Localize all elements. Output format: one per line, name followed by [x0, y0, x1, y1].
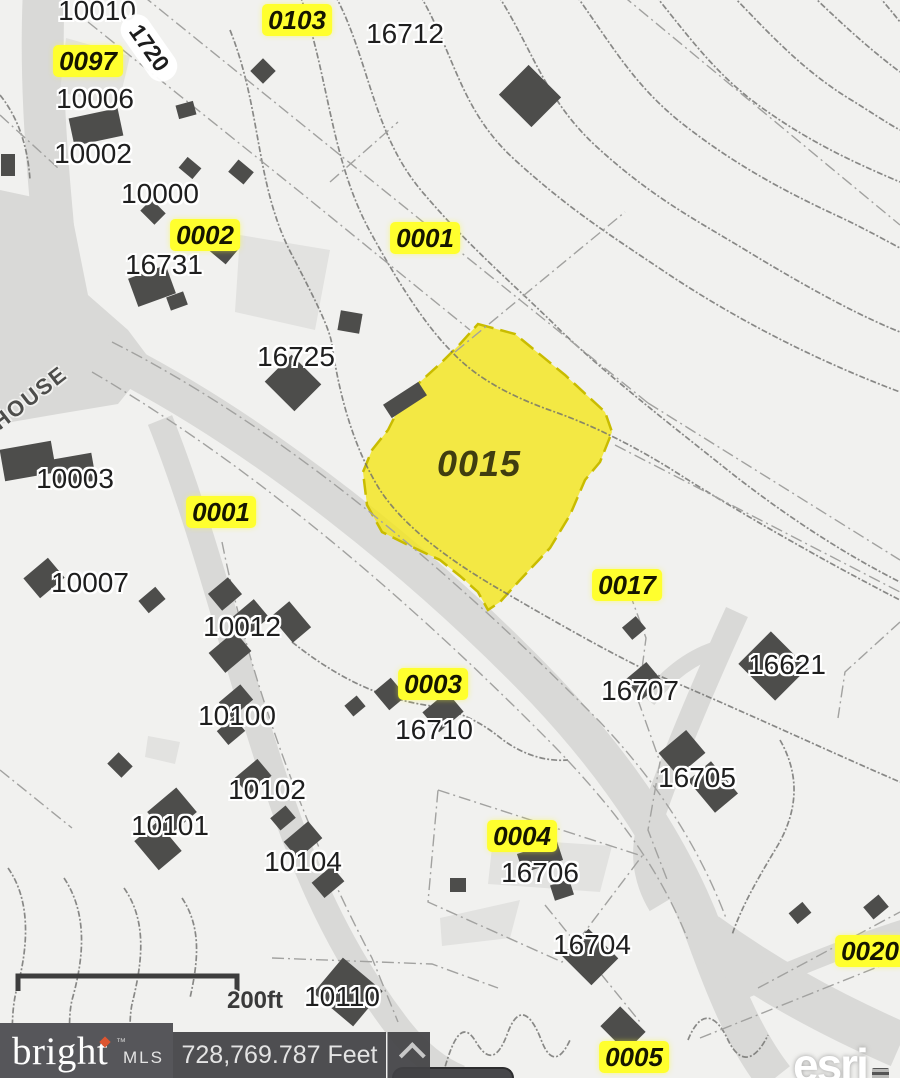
address-label-10110: 10110 — [304, 983, 380, 1011]
parcel-label-0003: 0003 — [400, 670, 466, 698]
chevron-up-icon — [398, 1042, 425, 1069]
address-label-16706: 16706 — [501, 859, 579, 887]
esri-attribution-logo: esri — [793, 1038, 889, 1078]
brand-wordmark: bright — [12, 1029, 108, 1074]
parcel-label-0004: 0004 — [489, 822, 555, 850]
parcel-label-0001: 0001 — [188, 498, 254, 526]
map-canvas[interactable]: 1001016712100061000210000167311672510003… — [0, 0, 900, 1078]
scale-bar-label: 200ft — [227, 989, 283, 1013]
road-label-1720: 1720 — [115, 8, 184, 87]
esri-globe-icon — [872, 1068, 889, 1078]
parcel-label-0017: 0017 — [594, 571, 660, 599]
address-label-16705: 16705 — [658, 764, 736, 792]
address-label-10012: 10012 — [203, 613, 281, 641]
address-label-16712: 16712 — [366, 20, 444, 48]
esri-wordmark: esri — [793, 1039, 867, 1078]
brightmls-logo: bright ™ MLS — [0, 1023, 173, 1078]
address-label-16621: 16621 — [748, 651, 826, 679]
address-label-16707: 16707 — [601, 677, 679, 705]
parcel-label-0001: 0001 — [392, 224, 458, 252]
parcel-label-0020: 0020 — [837, 937, 900, 965]
brand-mls-label: MLS — [123, 1048, 164, 1068]
address-label-10007: 10007 — [51, 569, 129, 597]
address-label-16725: 16725 — [257, 343, 335, 371]
measurement-readout: 728,769.787 Feet — [173, 1032, 386, 1078]
road-label-HOUSE: HOUSE — [0, 362, 72, 434]
parcel-label-0005: 0005 — [601, 1043, 667, 1071]
parcel-label-0097: 0097 — [55, 47, 121, 75]
measurement-value: 728,769.787 Feet — [182, 1041, 378, 1070]
address-label-10003: 10003 — [36, 465, 114, 493]
map-labels-layer: 1001016712100061000210000167311672510003… — [0, 0, 900, 1078]
parcel-label-0002: 0002 — [172, 221, 238, 249]
brand-trademark: ™ — [116, 1037, 126, 1048]
address-label-10101: 10101 — [131, 812, 209, 840]
collapse-button[interactable] — [387, 1032, 430, 1078]
highlighted-parcel-label-0015: 0015 — [437, 446, 521, 482]
address-label-10100: 10100 — [198, 702, 276, 730]
address-label-10104: 10104 — [264, 848, 342, 876]
address-label-10000: 10000 — [121, 180, 199, 208]
address-label-16710: 16710 — [395, 716, 473, 744]
address-label-16731: 16731 — [125, 251, 203, 279]
address-label-10002: 10002 — [54, 140, 132, 168]
address-label-16704: 16704 — [553, 931, 631, 959]
parcel-label-0103: 0103 — [264, 6, 330, 34]
address-label-10102: 10102 — [228, 776, 306, 804]
address-label-10006: 10006 — [56, 85, 134, 113]
